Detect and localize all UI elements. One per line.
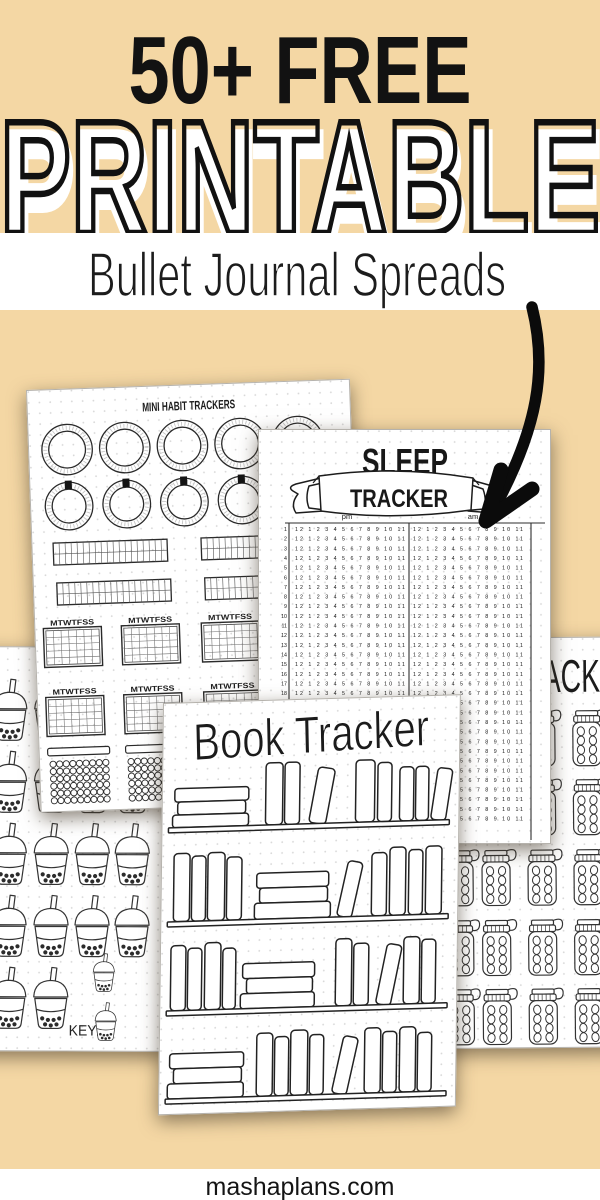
svg-text:10: 10 [281, 614, 287, 620]
svg-text:17: 17 [281, 681, 287, 687]
svg-text:4: 4 [284, 556, 287, 562]
svg-text:5: 5 [284, 566, 287, 572]
svg-text:2: 2 [284, 537, 287, 543]
svg-text:50+ FREE: 50+ FREE [129, 17, 472, 112]
svg-text:1: 1 [284, 527, 287, 533]
svg-text:12: 12 [281, 633, 287, 639]
svg-text:KEY:: KEY: [69, 1022, 100, 1039]
svg-text:PRINTABLE: PRINTABLE [0, 100, 600, 250]
svg-text:3: 3 [284, 546, 287, 552]
svg-text:pm: pm [342, 512, 352, 521]
svg-text:16: 16 [281, 672, 287, 678]
svg-text:9: 9 [284, 604, 287, 610]
svg-text:15: 15 [281, 662, 287, 668]
svg-text:11: 11 [282, 624, 288, 630]
svg-text:13: 13 [281, 643, 287, 649]
svg-text:18: 18 [281, 691, 287, 697]
svg-text:TRACKER: TRACKER [350, 485, 448, 513]
svg-text:7: 7 [284, 585, 287, 591]
svg-text:14: 14 [281, 652, 287, 658]
svg-text:6: 6 [284, 575, 287, 581]
svg-text:8: 8 [284, 595, 287, 601]
